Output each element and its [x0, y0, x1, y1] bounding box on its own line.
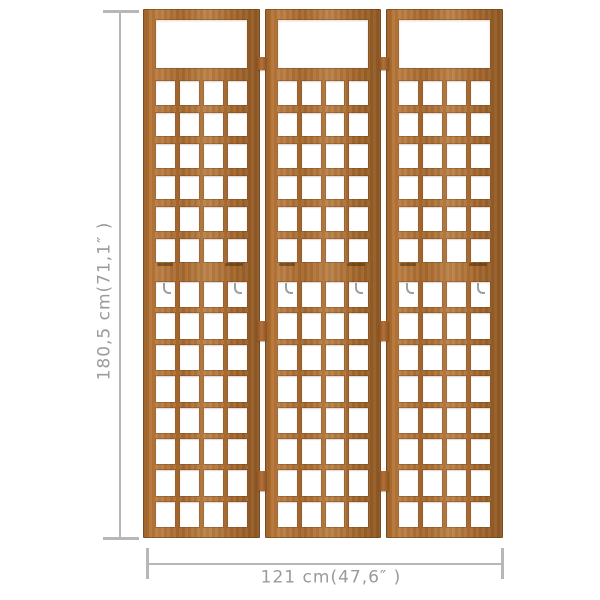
lattice-hole	[278, 502, 297, 527]
lattice-hole	[156, 345, 175, 370]
lattice-hole	[204, 176, 223, 200]
lattice-hole	[399, 470, 418, 495]
lattice-hole	[326, 282, 345, 307]
lattice-hole	[423, 144, 442, 168]
lattice-hole	[302, 144, 321, 168]
lattice-hole	[156, 313, 175, 338]
lattice-hole	[399, 502, 418, 527]
lattice-hole	[278, 176, 297, 200]
lattice-hole	[349, 113, 368, 137]
lattice-hole	[349, 313, 368, 338]
lattice-hole	[278, 345, 297, 370]
lattice-hole	[278, 239, 297, 263]
divider-panel-1	[143, 9, 260, 538]
lattice-hole	[228, 113, 247, 137]
lattice-hole	[228, 439, 247, 464]
lattice-hole	[302, 81, 321, 105]
lattice-hole	[471, 113, 490, 137]
lattice-hole	[180, 408, 199, 433]
lattice-hole	[204, 408, 223, 433]
width-dimension-label: 121 cm(47,6″ )	[261, 570, 402, 587]
lattice-hole	[204, 502, 223, 527]
lattice-hole	[471, 81, 490, 105]
lattice-hole	[204, 439, 223, 464]
lattice-hole	[302, 113, 321, 137]
lattice-hole	[326, 502, 345, 527]
lattice-hole	[349, 502, 368, 527]
lattice-hole	[228, 470, 247, 495]
lattice-hole	[399, 345, 418, 370]
hinge-slot	[347, 263, 365, 266]
panel-upper-lattice	[156, 81, 247, 262]
lattice-hole	[471, 345, 490, 370]
panel-top-opening	[278, 20, 369, 68]
lattice-hole	[423, 502, 442, 527]
lattice-hole	[326, 176, 345, 200]
lattice-hole	[447, 345, 466, 370]
lattice-hole	[180, 113, 199, 137]
lattice-hole	[302, 376, 321, 401]
lattice-hole	[228, 345, 247, 370]
lattice-hole	[278, 408, 297, 433]
lattice-hole	[204, 313, 223, 338]
lattice-hole	[228, 408, 247, 433]
metal-hook	[406, 283, 414, 294]
hinge-slot	[469, 263, 487, 266]
lattice-hole	[156, 144, 175, 168]
lattice-hole	[326, 313, 345, 338]
panel-hinge	[257, 321, 267, 341]
lattice-hole	[423, 176, 442, 200]
product-dimension-diagram: 180,5 cm(71,1″ ) 121 cm(47,6″ )	[0, 0, 600, 600]
hinge-slot	[400, 263, 416, 266]
lattice-hole	[326, 207, 345, 231]
lattice-hole	[447, 470, 466, 495]
lattice-hole	[204, 282, 223, 307]
lattice-hole	[349, 376, 368, 401]
lattice-hole	[326, 439, 345, 464]
lattice-hole	[399, 176, 418, 200]
panel-lower-lattice	[156, 282, 247, 527]
lattice-hole	[156, 81, 175, 105]
lattice-hole	[180, 439, 199, 464]
panel-lower-lattice	[278, 282, 369, 527]
lattice-hole	[180, 81, 199, 105]
lattice-hole	[399, 439, 418, 464]
height-dimension-cap-top	[103, 10, 139, 13]
lattice-hole	[180, 239, 199, 263]
lattice-hole	[423, 408, 442, 433]
lattice-hole	[156, 113, 175, 137]
panel-upper-lattice	[399, 81, 490, 262]
lattice-hole	[423, 345, 442, 370]
lattice-hole	[447, 144, 466, 168]
lattice-hole	[156, 239, 175, 263]
lattice-hole	[302, 313, 321, 338]
divider-panel-2	[265, 9, 382, 538]
lattice-hole	[447, 207, 466, 231]
lattice-hole	[399, 376, 418, 401]
lattice-hole	[349, 239, 368, 263]
lattice-hole	[302, 439, 321, 464]
lattice-hole	[278, 313, 297, 338]
lattice-hole	[399, 81, 418, 105]
panel-top-opening	[399, 20, 490, 68]
lattice-hole	[156, 439, 175, 464]
width-dimension-line	[147, 563, 503, 565]
lattice-hole	[156, 470, 175, 495]
lattice-hole	[204, 345, 223, 370]
panel-hinge	[379, 471, 389, 491]
metal-hook	[163, 283, 171, 294]
lattice-hole	[180, 207, 199, 231]
metal-hook	[355, 283, 363, 294]
lattice-hole	[228, 376, 247, 401]
lattice-hole	[228, 144, 247, 168]
lattice-hole	[180, 144, 199, 168]
lattice-hole	[228, 502, 247, 527]
lattice-hole	[447, 81, 466, 105]
metal-hook	[477, 283, 485, 294]
lattice-hole	[399, 207, 418, 231]
height-dimension-cap-bottom	[103, 537, 139, 540]
lattice-hole	[447, 439, 466, 464]
lattice-hole	[204, 376, 223, 401]
lattice-hole	[156, 502, 175, 527]
lattice-hole	[399, 408, 418, 433]
lattice-hole	[180, 470, 199, 495]
lattice-hole	[447, 313, 466, 338]
lattice-hole	[204, 113, 223, 137]
lattice-hole	[447, 376, 466, 401]
lattice-hole	[399, 313, 418, 338]
lattice-hole	[204, 144, 223, 168]
lattice-hole	[156, 176, 175, 200]
lattice-hole	[228, 207, 247, 231]
lattice-hole	[204, 470, 223, 495]
lattice-hole	[471, 439, 490, 464]
lattice-hole	[447, 408, 466, 433]
lattice-hole	[180, 313, 199, 338]
lattice-hole	[349, 408, 368, 433]
lattice-hole	[278, 81, 297, 105]
panel-hinge	[257, 471, 267, 491]
height-dimension-label: 180,5 cm(71,1″ )	[97, 222, 114, 381]
panel-hinge	[379, 321, 389, 341]
lattice-hole	[349, 470, 368, 495]
lattice-hole	[302, 408, 321, 433]
lattice-hole	[204, 239, 223, 263]
lattice-hole	[302, 502, 321, 527]
lattice-hole	[228, 81, 247, 105]
lattice-hole	[326, 470, 345, 495]
lattice-hole	[278, 439, 297, 464]
lattice-hole	[156, 207, 175, 231]
lattice-hole	[204, 81, 223, 105]
lattice-hole	[349, 439, 368, 464]
width-dimension-cap-left	[146, 548, 149, 579]
lattice-hole	[156, 408, 175, 433]
lattice-hole	[302, 282, 321, 307]
panel-hinge	[257, 57, 267, 70]
lattice-hole	[471, 408, 490, 433]
lattice-hole	[423, 207, 442, 231]
lattice-hole	[302, 207, 321, 231]
lattice-hole	[447, 502, 466, 527]
lattice-hole	[180, 376, 199, 401]
lattice-hole	[302, 470, 321, 495]
lattice-hole	[471, 376, 490, 401]
lattice-hole	[180, 345, 199, 370]
panel-top-opening	[156, 20, 247, 68]
lattice-hole	[399, 144, 418, 168]
lattice-hole	[180, 176, 199, 200]
lattice-hole	[326, 345, 345, 370]
width-dimension-cap-right	[501, 548, 504, 579]
room-divider	[143, 9, 503, 538]
lattice-hole	[447, 282, 466, 307]
lattice-hole	[228, 239, 247, 263]
lattice-hole	[471, 470, 490, 495]
lattice-hole	[302, 176, 321, 200]
lattice-hole	[471, 144, 490, 168]
lattice-hole	[326, 81, 345, 105]
lattice-hole	[349, 81, 368, 105]
lattice-hole	[471, 207, 490, 231]
lattice-hole	[349, 144, 368, 168]
lattice-hole	[349, 207, 368, 231]
lattice-hole	[278, 113, 297, 137]
lattice-hole	[447, 176, 466, 200]
panel-upper-lattice	[278, 81, 369, 262]
lattice-hole	[326, 376, 345, 401]
lattice-hole	[278, 376, 297, 401]
lattice-hole	[471, 176, 490, 200]
lattice-hole	[423, 239, 442, 263]
panel-lower-lattice	[399, 282, 490, 527]
lattice-hole	[423, 439, 442, 464]
lattice-hole	[423, 282, 442, 307]
height-dimension-line	[119, 11, 121, 539]
lattice-hole	[326, 408, 345, 433]
lattice-hole	[423, 113, 442, 137]
lattice-hole	[349, 345, 368, 370]
lattice-hole	[278, 144, 297, 168]
lattice-hole	[471, 239, 490, 263]
lattice-hole	[423, 376, 442, 401]
lattice-hole	[399, 113, 418, 137]
lattice-hole	[180, 282, 199, 307]
lattice-hole	[423, 313, 442, 338]
lattice-hole	[447, 239, 466, 263]
lattice-hole	[399, 239, 418, 263]
lattice-hole	[471, 502, 490, 527]
hinge-slot	[279, 263, 295, 266]
lattice-hole	[471, 313, 490, 338]
lattice-hole	[302, 345, 321, 370]
lattice-hole	[326, 113, 345, 137]
lattice-hole	[423, 81, 442, 105]
lattice-hole	[228, 313, 247, 338]
lattice-hole	[156, 376, 175, 401]
lattice-hole	[180, 502, 199, 527]
lattice-hole	[326, 144, 345, 168]
lattice-hole	[278, 207, 297, 231]
hinge-slot	[225, 263, 243, 266]
hinge-slot	[157, 263, 173, 266]
divider-panel-3	[386, 9, 503, 538]
lattice-hole	[302, 239, 321, 263]
lattice-hole	[326, 239, 345, 263]
lattice-hole	[447, 113, 466, 137]
lattice-hole	[278, 470, 297, 495]
panel-hinge	[379, 57, 389, 70]
lattice-hole	[204, 207, 223, 231]
lattice-hole	[228, 176, 247, 200]
lattice-hole	[349, 176, 368, 200]
lattice-hole	[423, 470, 442, 495]
